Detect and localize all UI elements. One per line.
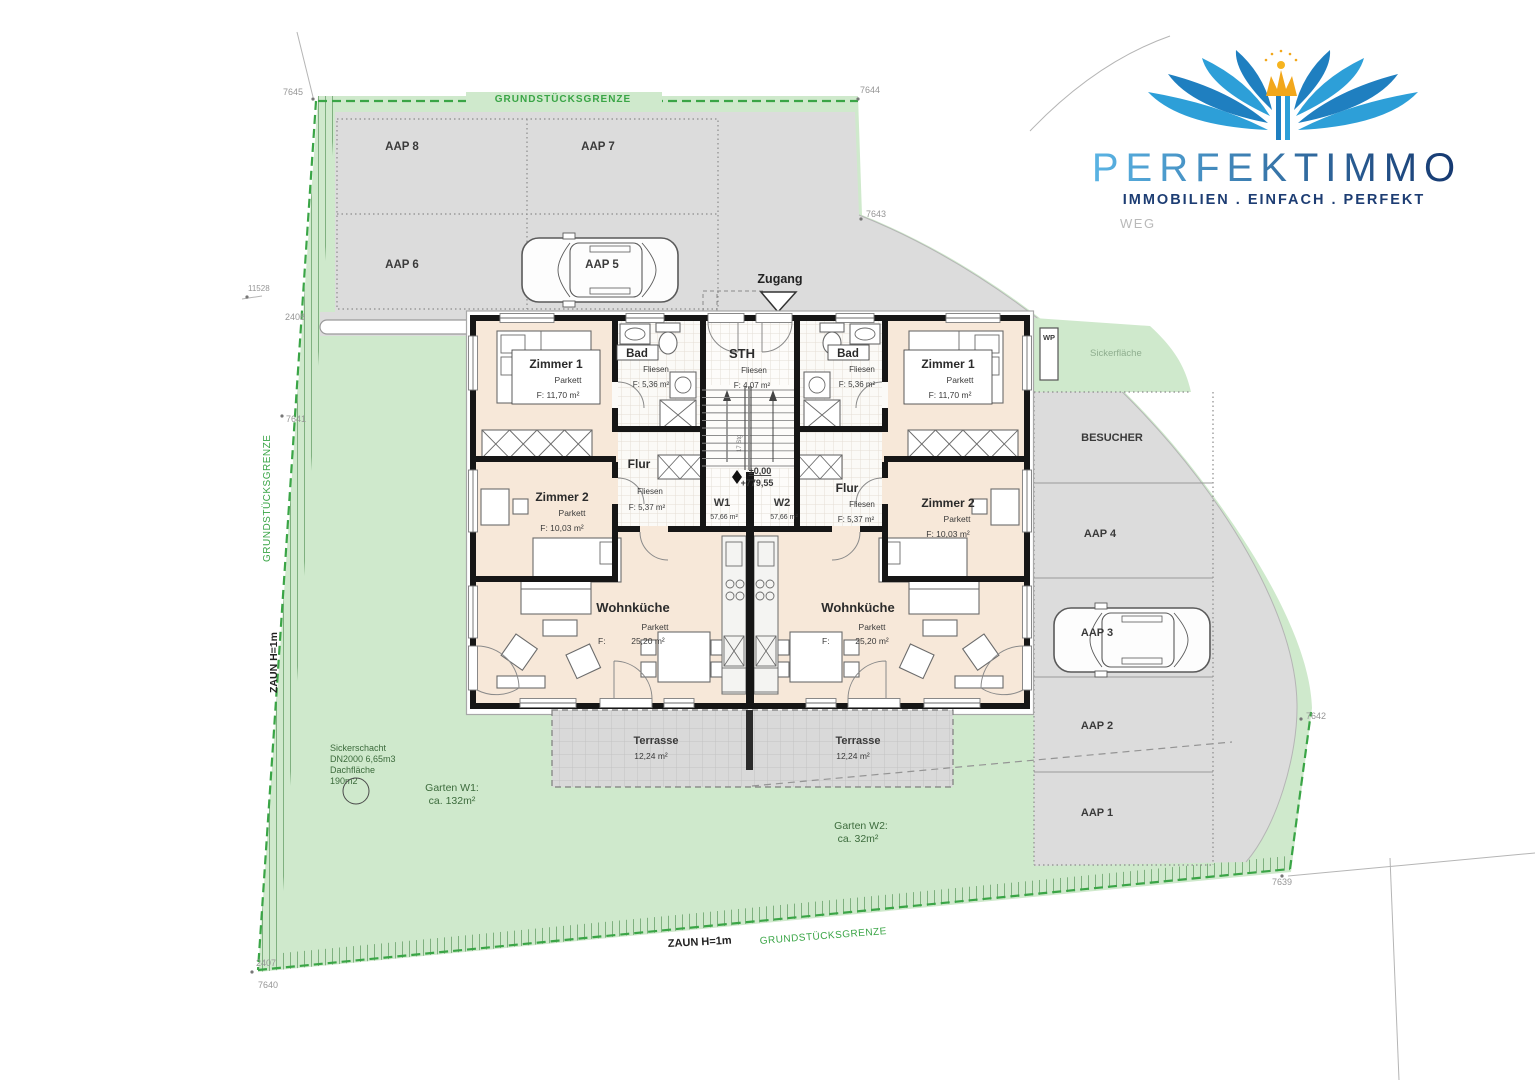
- room-flur-area: F: 5,37 m²: [838, 515, 875, 524]
- parking-space-aap6: AAP 6: [385, 259, 419, 271]
- room-zimmer1-label: Zimmer 1: [921, 357, 975, 371]
- room-flur-area: F: 5,37 m²: [629, 503, 666, 512]
- sickerflaeche-label: Sickerfläche: [1090, 348, 1142, 359]
- parking-space-aap7: AAP 7: [581, 141, 615, 153]
- parking-space-aap4: AAP 4: [1084, 528, 1117, 540]
- marker-2407: 2407: [256, 958, 276, 968]
- parking-space-aap2: AAP 2: [1081, 720, 1113, 732]
- room-zimmer1-area: F: 11,70 m²: [929, 390, 972, 400]
- parking-space-aap3: AAP 3: [1081, 627, 1113, 639]
- marker-7645: 7645: [283, 87, 303, 97]
- unit-w1-label: W1: [714, 497, 731, 509]
- zugang-label: Zugang: [757, 272, 802, 286]
- marker-7642: 7642: [1306, 711, 1326, 721]
- parking-space-besucher: BESUCHER: [1081, 432, 1143, 444]
- fence-label-left: ZAUN H=1m: [268, 632, 280, 693]
- logo-monogram: [1276, 94, 1281, 140]
- sickerschacht-line1: Sickerschacht: [330, 743, 387, 753]
- room-zimmer2-area: F: 10,03 m²: [540, 523, 584, 533]
- room-zimmer2-label: Zimmer 2: [921, 496, 975, 510]
- terrasse-w2-label: Terrasse: [835, 735, 880, 747]
- room-wohnkueche-area: 25,20 m²: [855, 636, 889, 646]
- room-wohnkueche-floor: Parkett: [859, 622, 887, 632]
- room-wohnkueche-label: Wohnküche: [596, 600, 669, 615]
- room-zimmer2-floor: Parkett: [944, 514, 972, 524]
- room-sth-label: STH: [729, 346, 755, 361]
- boundary-label-top: GRUNDSTÜCKSGRENZE: [495, 92, 631, 105]
- room-zimmer1-floor: Parkett: [947, 375, 975, 385]
- marker-7641: 7641: [286, 414, 306, 424]
- room-wohnkueche-floor: Parkett: [642, 622, 670, 632]
- terrasse-w1-area: 12,24 m²: [634, 751, 668, 761]
- room-wohnkueche-area-prefix: F:: [598, 636, 606, 646]
- wp-label: WP: [1043, 333, 1055, 342]
- marker-7639: 7639: [1272, 877, 1292, 887]
- fence-label-bottom: ZAUN H=1m: [668, 935, 733, 950]
- level-relative: ±0,00: [749, 466, 771, 476]
- room-bad-floor: Fliesen: [643, 365, 669, 374]
- marker-11528: 11528: [248, 284, 270, 293]
- marker-7640: 7640: [258, 980, 278, 990]
- room-zimmer1-label: Zimmer 1: [529, 357, 583, 371]
- weg-label: WEG: [1120, 216, 1156, 231]
- boundary-label-left: GRUNDSTÜCKSGRENZE: [261, 435, 273, 562]
- garten-w2-label: Garten W2:: [834, 820, 888, 832]
- logo-tagline: IMMOBILIEN . EINFACH . PERFEKT: [1123, 192, 1425, 208]
- room-bad-area: F: 5,36 m²: [633, 380, 670, 389]
- room-flur-floor: Fliesen: [637, 487, 663, 496]
- parking-space-aap1: AAP 1: [1081, 807, 1113, 819]
- room-zimmer2-label: Zimmer 2: [535, 490, 589, 504]
- room-flur-floor: Fliesen: [849, 500, 875, 509]
- sickerschacht-line3: Dachfläche: [330, 765, 375, 775]
- perfektimmo-logo: PERFEKTIMMO IMMOBILIEN . EINFACH . PERFE…: [1092, 50, 1462, 208]
- garten-w1-area: ca. 132m²: [429, 795, 476, 807]
- logo-title: PERFEKTIMMO: [1092, 146, 1462, 190]
- room-sth-area: F: 4,07 m²: [734, 381, 771, 390]
- room-bad-label: Bad: [626, 348, 648, 360]
- room-bad-floor: Fliesen: [849, 365, 875, 374]
- room-sth-floor: Fliesen: [741, 366, 767, 375]
- site-plan-page: AAP 8 AAP 7 AAP 6 AAP 5 BESUCHER AAP 4 A…: [0, 0, 1535, 1080]
- sickerschacht-line2: DN2000 6,65m3: [330, 754, 396, 764]
- terrasse-w1-label: Terrasse: [633, 735, 678, 747]
- room-bad-area: F: 5,36 m²: [839, 380, 876, 389]
- marker-7644: 7644: [860, 85, 880, 95]
- logo-crown-icon: [1265, 50, 1298, 96]
- room-bad-label: Bad: [837, 348, 859, 360]
- parking-space-aap5: AAP 5: [585, 259, 619, 271]
- marker-2408: 2408: [285, 312, 305, 322]
- stair-note: 17 Stg: [737, 435, 743, 452]
- room-flur-label: Flur: [628, 457, 651, 471]
- unit-w2-label: W2: [774, 497, 791, 509]
- level-absolute: +779,55: [741, 478, 774, 488]
- sickerschacht-line4: 190m2: [330, 776, 358, 786]
- room-zimmer1-floor: Parkett: [555, 375, 583, 385]
- garten-w2-area: ca. 32m²: [838, 833, 879, 845]
- boundary-label-bottom: GRUNDSTÜCKSGRENZE: [759, 925, 887, 947]
- site-plan-canvas: AAP 8 AAP 7 AAP 6 AAP 5 BESUCHER AAP 4 A…: [0, 0, 1535, 1080]
- terrasse-w2-area: 12,24 m²: [836, 751, 870, 761]
- unit-w1-area: 57,66 m²: [710, 514, 738, 521]
- garten-w1-label: Garten W1:: [425, 782, 479, 794]
- parking-space-aap8: AAP 8: [385, 141, 419, 153]
- room-zimmer1-area: F: 11,70 m²: [537, 390, 580, 400]
- room-zimmer2-area: F: 10,03 m²: [926, 529, 970, 539]
- logo-wings-icon: [1148, 50, 1418, 140]
- marker-7643: 7643: [866, 209, 886, 219]
- unit-w2-area: 57,66 m²: [770, 514, 798, 521]
- room-flur-label: Flur: [836, 481, 859, 495]
- room-wohnkueche-area: 25,20 m²: [631, 636, 665, 646]
- room-zimmer2-floor: Parkett: [559, 508, 587, 518]
- room-wohnkueche-label: Wohnküche: [821, 600, 894, 615]
- room-wohnkueche-area-prefix: F:: [822, 636, 830, 646]
